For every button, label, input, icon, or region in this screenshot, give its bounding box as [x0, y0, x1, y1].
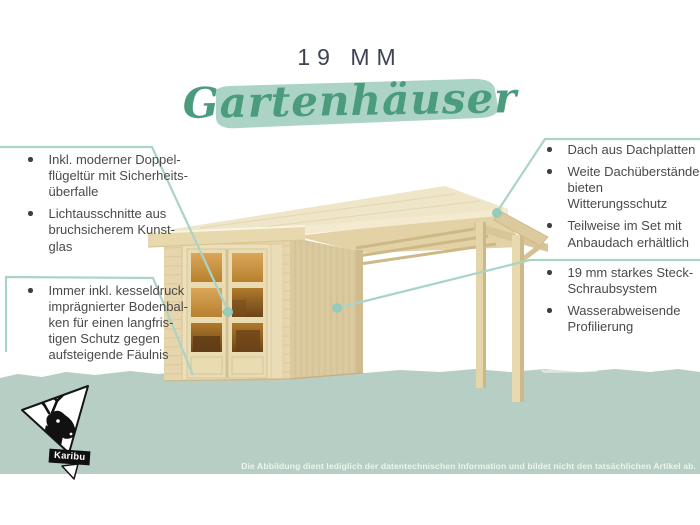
bullet-icon [547, 270, 552, 275]
poster: 19 MM Gartenhäuser Inkl. moderner Doppel… [0, 0, 700, 525]
ground-band [0, 368, 700, 474]
list-item: Teilweise im Set mit Anbaudach erhältlic… [545, 218, 700, 250]
side-wall [290, 235, 363, 380]
house [148, 186, 548, 402]
list-item: Dach aus Dachplatten [545, 142, 700, 158]
callout-text: Teilweise im Set mit Anbaudach erhältlic… [568, 218, 689, 250]
bullet-icon [28, 211, 33, 216]
bullet-icon [547, 308, 552, 313]
callout-list-left-top: Inkl. moderner Doppel- flügeltür mit Sic… [26, 152, 194, 261]
callout-text: 19 mm starkes Steck- Schraubsystem [568, 265, 694, 297]
callout-list-right-top: Dach aus Dachplatten Weite Dachüberständ… [545, 142, 700, 257]
bullet-icon [547, 169, 552, 174]
list-item: Inkl. moderner Doppel- flügeltür mit Sic… [26, 152, 194, 200]
disclaimer-text: Die Abbildung dient lediglich der datent… [241, 461, 696, 471]
wall-marker-dot [332, 303, 342, 313]
callout-text: Lichtausschnitte aus bruchsicherem Kunst… [49, 206, 175, 254]
size-label: 19 MM [0, 44, 700, 71]
door-marker-dot [223, 307, 233, 317]
list-item: Immer inkl. kesseldruck imprägnierter Bo… [26, 283, 198, 364]
bullet-icon [28, 157, 33, 162]
callout-text: Dach aus Dachplatten [568, 142, 696, 158]
bullet-icon [547, 147, 552, 152]
roof-marker-dot [492, 208, 502, 218]
list-item: Wasserabweisende Profilierung [545, 303, 700, 335]
callout-text: Inkl. moderner Doppel- flügeltür mit Sic… [49, 152, 188, 200]
list-item: Weite Dachüberstände bieten Witterungssc… [545, 164, 700, 212]
list-item: Lichtausschnitte aus bruchsicherem Kunst… [26, 206, 194, 254]
bullet-icon [547, 223, 552, 228]
callout-list-right-bottom: 19 mm starkes Steck- Schraubsystem Wasse… [545, 265, 700, 341]
callout-text: Immer inkl. kesseldruck imprägnierter Bo… [49, 283, 188, 364]
bullet-icon [28, 288, 33, 293]
callout-text: Wasserabweisende Profilierung [568, 303, 681, 335]
callout-text: Weite Dachüberstände bieten Witterungssc… [568, 164, 700, 212]
list-item: 19 mm starkes Steck- Schraubsystem [545, 265, 700, 297]
brand-label: Karibu [49, 449, 91, 466]
callout-list-left-bottom: Immer inkl. kesseldruck imprägnierter Bo… [26, 283, 198, 370]
